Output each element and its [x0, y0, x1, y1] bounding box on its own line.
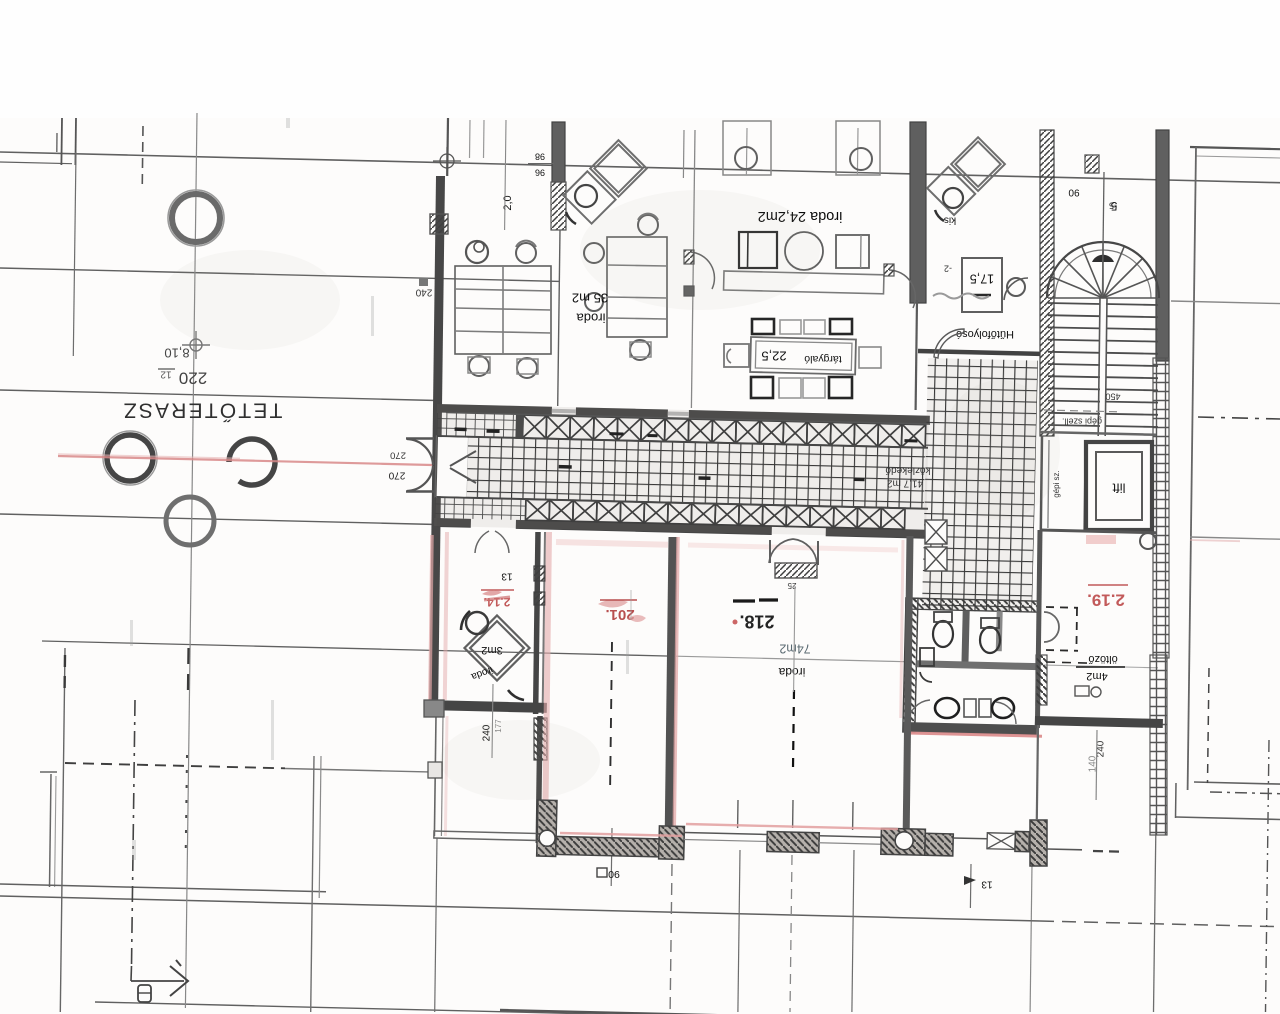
svg-text:450: 450 [1105, 392, 1120, 402]
svg-text:2,0: 2,0 [502, 195, 514, 210]
svg-text:13: 13 [981, 878, 993, 889]
svg-text:4m2: 4m2 [1086, 670, 1107, 682]
svg-text:41,7 m2: 41,7 m2 [886, 477, 923, 488]
svg-text:3m2: 3m2 [481, 644, 502, 656]
svg-text:12: 12 [160, 368, 172, 379]
svg-text:35 m2: 35 m2 [572, 291, 608, 306]
svg-text:17,5: 17,5 [970, 272, 994, 286]
svg-text:96: 96 [535, 168, 545, 178]
svg-text:13: 13 [501, 570, 513, 581]
svg-text:öltöző: öltöző [1088, 653, 1117, 665]
svg-text:-2: -2 [944, 264, 952, 274]
svg-text:lift: lift [1112, 481, 1125, 496]
svg-text:iroda: iroda [778, 665, 805, 679]
svg-text:gépi szell.: gépi szell. [1062, 417, 1102, 427]
svg-text:tárgyaló: tárgyaló [804, 353, 842, 365]
svg-text:2.19.: 2.19. [1087, 591, 1125, 610]
svg-text:90: 90 [1068, 186, 1080, 197]
svg-text:kis: kis [944, 214, 956, 225]
svg-text:90: 90 [608, 868, 620, 880]
svg-text:240: 240 [415, 286, 432, 297]
svg-text:22,5: 22,5 [761, 349, 786, 364]
svg-text:270: 270 [390, 449, 406, 460]
svg-text:TETŐTERASZ: TETŐTERASZ [122, 398, 283, 421]
svg-text:közlekedő: közlekedő [885, 464, 930, 475]
svg-text:98: 98 [535, 152, 545, 162]
svg-text:218.: 218. [739, 611, 774, 631]
svg-text:-5: -5 [1109, 201, 1117, 211]
svg-text:iroda: iroda [576, 311, 606, 326]
svg-text:74m2: 74m2 [779, 642, 810, 656]
svg-text:270: 270 [388, 469, 405, 480]
svg-text:8,10: 8,10 [164, 346, 189, 361]
svg-text:220: 220 [179, 369, 207, 388]
